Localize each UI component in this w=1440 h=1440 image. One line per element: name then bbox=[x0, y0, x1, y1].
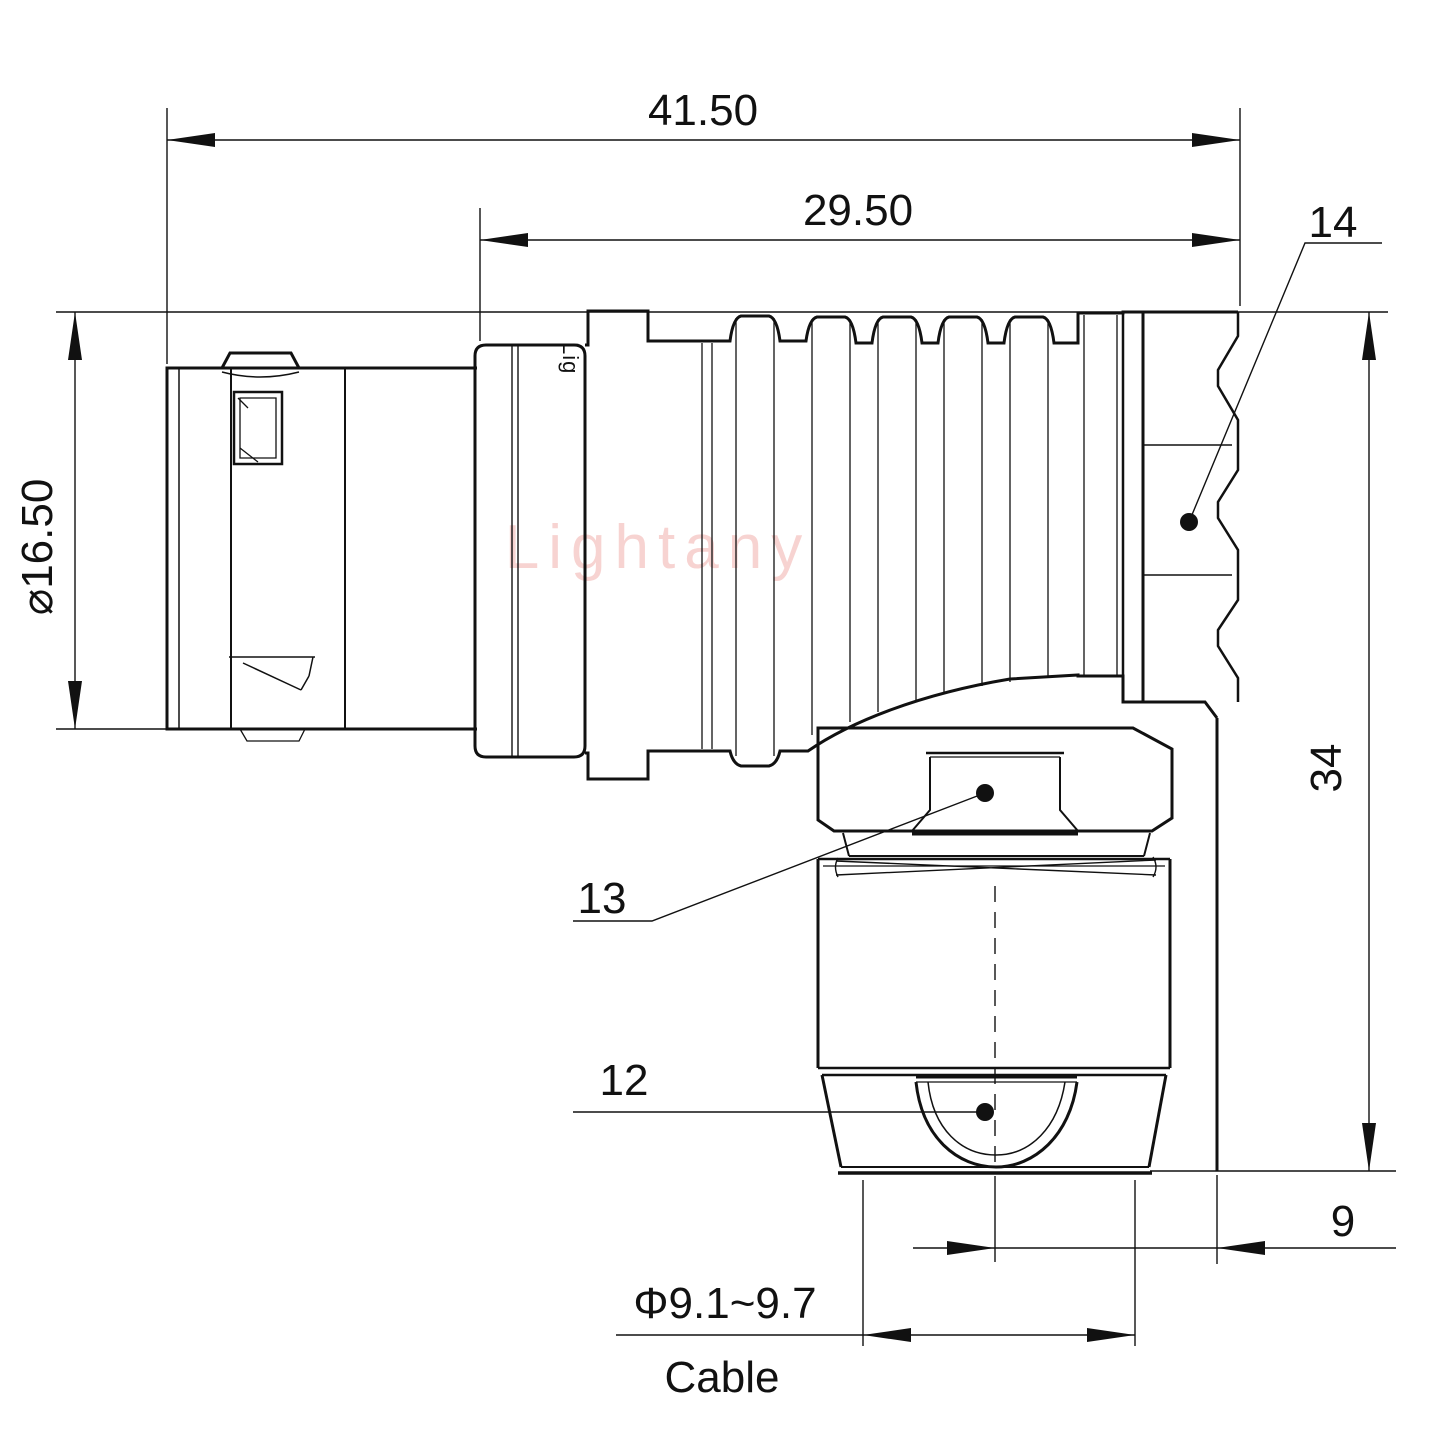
arrow-icon bbox=[1087, 1328, 1135, 1342]
bayonet-stud bbox=[222, 353, 299, 368]
arrow-icon bbox=[1362, 1123, 1376, 1171]
callout-dots bbox=[976, 513, 1198, 1121]
dim-rear-length: 29.50 bbox=[803, 186, 913, 235]
arrow-icon bbox=[1192, 133, 1240, 147]
dim-offset: 9 bbox=[1331, 1197, 1355, 1246]
cable-clamp-body bbox=[818, 859, 1170, 1075]
cable-label: Cable bbox=[665, 1353, 780, 1402]
callout-12: 12 bbox=[600, 1056, 649, 1105]
leader-dot-13 bbox=[976, 784, 994, 802]
front-barrel bbox=[167, 353, 477, 741]
leader-dot-12 bbox=[976, 1103, 994, 1121]
arrow-icon bbox=[480, 233, 528, 247]
arrow-icon bbox=[68, 312, 82, 360]
lower-bayonet-slot bbox=[229, 657, 315, 690]
collet-nut bbox=[822, 1075, 1166, 1173]
technical-drawing-page: Lightany bbox=[0, 0, 1440, 1440]
callout-leaders bbox=[573, 243, 1382, 1112]
body-brand-marking: Lig bbox=[558, 342, 583, 374]
arrow-icon bbox=[68, 681, 82, 729]
arrow-icon bbox=[1217, 1241, 1265, 1255]
dim-overall-length: 41.50 bbox=[648, 86, 758, 135]
bayonet-slot-window bbox=[234, 392, 282, 464]
elbow-hex-nut bbox=[818, 728, 1172, 833]
dimension-arrowheads bbox=[68, 133, 1376, 1342]
leader-dot-14 bbox=[1180, 513, 1198, 531]
callout-13: 13 bbox=[578, 874, 627, 923]
arrow-icon bbox=[863, 1328, 911, 1342]
coupling-ring bbox=[836, 833, 1157, 877]
arrow-icon bbox=[1362, 312, 1376, 360]
watermark-text: Lightany bbox=[505, 513, 811, 582]
dim-shell-diameter: ⌀16.50 bbox=[13, 479, 62, 616]
connector-drawing: Lightany bbox=[0, 0, 1440, 1440]
reference-lines bbox=[56, 108, 1396, 1346]
arrow-icon bbox=[947, 1241, 995, 1255]
dim-cable-diameter: Φ9.1~9.7 bbox=[633, 1279, 816, 1328]
thread-groove bbox=[836, 860, 1156, 875]
arrow-icon bbox=[1192, 233, 1240, 247]
dim-height: 34 bbox=[1302, 744, 1351, 793]
callout-14: 14 bbox=[1309, 198, 1358, 247]
arrow-icon bbox=[167, 133, 215, 147]
rear-backnut bbox=[1123, 312, 1238, 702]
